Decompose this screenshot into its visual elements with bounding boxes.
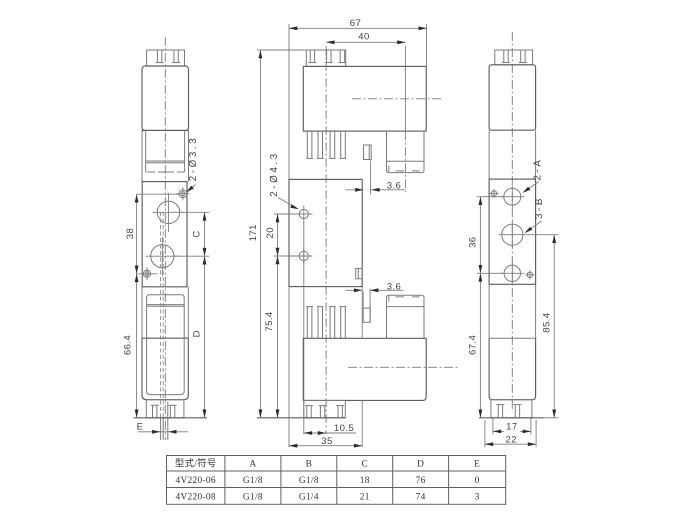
svg-text:36: 36 (467, 236, 478, 247)
svg-text:G1/8: G1/8 (299, 476, 319, 486)
svg-text:B: B (306, 460, 313, 470)
svg-text:66.4: 66.4 (123, 335, 134, 356)
svg-text:A: A (249, 460, 256, 470)
svg-text:17: 17 (506, 421, 517, 432)
svg-text:3: 3 (475, 493, 480, 503)
svg-text:2-A: 2-A (533, 157, 544, 180)
svg-text:G1/8: G1/8 (243, 476, 263, 486)
svg-text:2-Ø3.3: 2-Ø3.3 (188, 136, 199, 182)
svg-text:85.4: 85.4 (541, 312, 552, 333)
svg-text:G1/4: G1/4 (299, 493, 319, 503)
svg-text:E: E (474, 460, 480, 470)
svg-text:74: 74 (416, 493, 426, 503)
svg-text:40: 40 (358, 31, 369, 42)
svg-text:E: E (137, 421, 144, 432)
svg-text:18: 18 (360, 476, 370, 486)
svg-text:4V220-08: 4V220-08 (175, 493, 215, 503)
svg-text:3.6: 3.6 (387, 180, 402, 191)
svg-text:67: 67 (350, 18, 361, 29)
svg-text:0: 0 (475, 476, 480, 486)
svg-text:3.6: 3.6 (387, 281, 402, 292)
svg-text:型式/符号: 型式/符号 (175, 458, 217, 470)
svg-text:G1/8: G1/8 (243, 493, 263, 503)
svg-text:75.4: 75.4 (264, 311, 275, 332)
svg-text:35: 35 (321, 436, 332, 447)
svg-text:C: C (192, 230, 203, 237)
svg-text:10.5: 10.5 (334, 423, 354, 434)
svg-text:76: 76 (416, 476, 426, 486)
svg-text:20: 20 (265, 227, 276, 238)
svg-text:171: 171 (248, 224, 259, 241)
svg-text:C: C (361, 460, 368, 470)
svg-text:22: 22 (506, 435, 517, 446)
svg-text:D: D (417, 460, 424, 470)
svg-text:21: 21 (360, 493, 370, 503)
svg-text:4V220-06: 4V220-06 (175, 476, 215, 486)
svg-text:D: D (192, 330, 203, 337)
svg-text:3-B: 3-B (534, 196, 545, 219)
svg-text:38: 38 (125, 228, 136, 239)
svg-text:2-Ø4.3: 2-Ø4.3 (269, 151, 280, 197)
svg-text:67.4: 67.4 (467, 335, 478, 356)
